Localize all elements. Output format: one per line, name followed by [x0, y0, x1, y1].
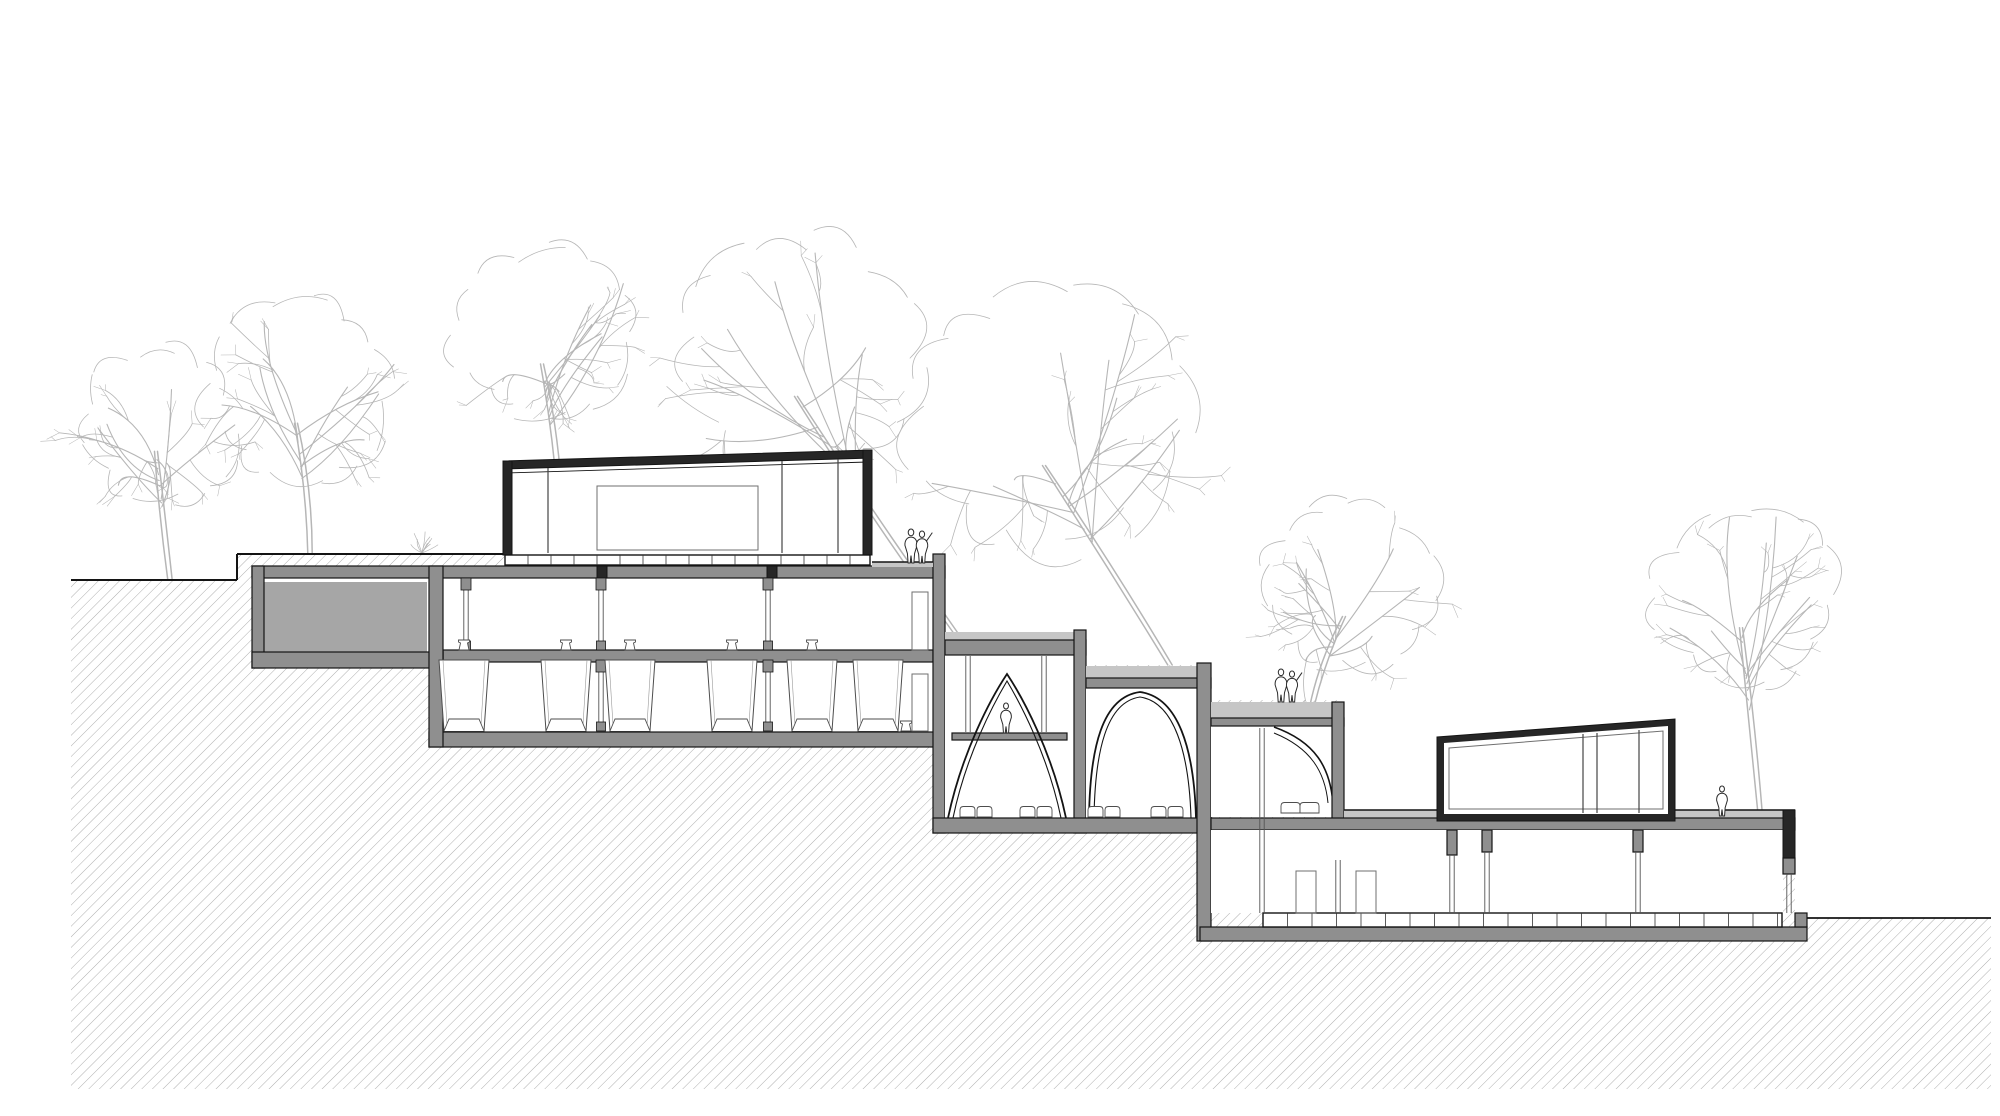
canopy-lobe — [342, 320, 368, 342]
cushion — [1105, 807, 1120, 818]
twig — [1052, 376, 1064, 380]
sunken-pool — [264, 582, 427, 652]
canopy-lobe — [1694, 655, 1717, 672]
canopy-lobe — [241, 446, 259, 472]
figure-body — [916, 539, 927, 563]
canopy-lobe — [1290, 512, 1323, 530]
canopy-lobe — [141, 350, 175, 357]
terrace-pier — [1447, 830, 1457, 855]
canopy-lobe — [1827, 546, 1841, 595]
twig — [255, 442, 259, 450]
canopy-lobe — [225, 431, 246, 450]
partition-cap — [461, 578, 471, 590]
canopy-lobe — [322, 466, 357, 484]
twig — [606, 323, 618, 327]
twig — [227, 398, 238, 399]
canopy-lobe — [675, 337, 694, 381]
trunk-line — [1740, 628, 1758, 812]
twig — [1134, 339, 1147, 342]
roof-pavilion-interior — [512, 455, 863, 555]
twig — [873, 380, 883, 386]
trunk-line — [298, 423, 313, 554]
twig — [592, 366, 602, 372]
twig — [807, 314, 814, 327]
branch-secondary — [571, 377, 609, 388]
twig — [1033, 549, 1034, 554]
figure-head — [908, 529, 914, 536]
branch-secondary — [190, 460, 220, 486]
stool — [561, 640, 572, 650]
canopy-lobe — [519, 247, 566, 262]
twig — [1661, 639, 1668, 644]
branch-secondary — [345, 442, 370, 478]
canopy-lobe — [1662, 639, 1694, 653]
deck-band — [505, 555, 870, 565]
canopy-lobe — [230, 302, 275, 323]
canopy-lobe — [1261, 565, 1269, 606]
roof-pavilion-left-wall — [503, 461, 512, 555]
branch — [1727, 518, 1746, 674]
twig — [69, 438, 80, 444]
canopy-lobe — [667, 387, 719, 423]
twig — [1390, 679, 1394, 690]
twig — [659, 399, 666, 405]
branch-secondary — [206, 407, 234, 445]
canopy-lobe — [1180, 366, 1200, 433]
twig — [1221, 476, 1225, 482]
twig — [801, 241, 802, 256]
canopy-lobe — [108, 470, 122, 496]
twig — [398, 384, 403, 390]
twig — [218, 486, 220, 496]
bed-mattress — [858, 719, 898, 731]
end-wall-sill — [1783, 858, 1795, 874]
figure-head — [1720, 786, 1725, 792]
twig — [1814, 601, 1818, 605]
figure-pair — [905, 529, 932, 563]
branch-secondary — [1285, 627, 1313, 645]
canopy-lobe — [593, 374, 627, 409]
canopy-lobe — [1298, 642, 1317, 663]
twig — [225, 450, 226, 462]
twig — [248, 367, 251, 380]
twig — [457, 402, 466, 406]
canopy-lobe — [1006, 530, 1081, 567]
branch-secondary — [1087, 467, 1130, 525]
canopy-lobe — [1309, 495, 1347, 507]
branch-secondary — [1773, 539, 1809, 568]
twig — [1269, 627, 1274, 637]
canopy-lobe — [91, 375, 93, 405]
twig — [1768, 544, 1771, 552]
twig — [889, 427, 896, 438]
canopy-lobe — [1646, 598, 1655, 630]
branch-secondary — [106, 391, 129, 421]
cushion — [1020, 807, 1035, 818]
canopy-lobe — [133, 494, 178, 501]
twig — [393, 372, 407, 374]
canopy-lobe — [1752, 509, 1804, 522]
branch — [260, 368, 300, 461]
branch-secondary — [1772, 550, 1811, 578]
branch-secondary — [1698, 535, 1728, 571]
twig — [609, 387, 619, 388]
branch-secondary — [1382, 616, 1425, 627]
branch-secondary — [466, 376, 506, 405]
twig — [204, 418, 211, 428]
vault-roof-2-slab — [1086, 678, 1211, 688]
twig — [1659, 586, 1666, 595]
twig — [1134, 387, 1141, 398]
figure-pair — [1275, 669, 1302, 702]
canopy-lobe — [993, 281, 1067, 296]
twig — [1452, 604, 1458, 618]
branch — [297, 392, 378, 435]
tree — [195, 294, 409, 554]
twig — [1168, 373, 1182, 376]
vault-mezzanine-slab — [952, 733, 1067, 740]
partition-cap — [597, 722, 606, 731]
twig — [1654, 604, 1667, 606]
twig — [369, 431, 377, 434]
twig — [1021, 541, 1026, 550]
twig — [974, 547, 975, 561]
branch-secondary — [1790, 575, 1814, 578]
twig — [686, 383, 691, 390]
twig — [238, 374, 251, 380]
twig — [607, 363, 610, 369]
twig — [1142, 435, 1144, 443]
canopy-lobe — [1348, 499, 1385, 507]
branch-secondary — [707, 343, 740, 352]
twig — [1221, 467, 1230, 476]
branch-secondary — [115, 477, 132, 496]
lowest-slab-step — [1795, 913, 1807, 927]
vault-party-wall — [1074, 630, 1086, 833]
branch-secondary — [1105, 376, 1168, 390]
stool — [727, 640, 738, 650]
branch-secondary — [857, 397, 898, 400]
cushion — [1300, 803, 1319, 814]
branch — [706, 428, 817, 442]
vault-room-1-interior — [945, 640, 1077, 818]
branch-secondary — [1117, 337, 1176, 382]
twig — [594, 383, 604, 384]
twig — [1199, 479, 1210, 489]
twig — [1761, 547, 1768, 553]
twig — [1795, 571, 1802, 572]
branch-secondary — [804, 327, 814, 371]
pool-right-wall — [429, 566, 443, 747]
twig — [1273, 564, 1283, 566]
partition-cap — [597, 641, 606, 650]
deck — [1263, 913, 1782, 927]
figure-head — [919, 531, 924, 537]
twig — [559, 424, 564, 430]
branch-secondary — [707, 388, 739, 396]
figure-body — [1275, 677, 1287, 702]
branch-secondary — [666, 392, 736, 398]
canopy-lobe — [1135, 471, 1170, 537]
twig — [1787, 669, 1800, 676]
branch — [301, 387, 348, 469]
twig — [107, 496, 115, 506]
twig — [1452, 604, 1461, 609]
branch — [704, 380, 828, 444]
canopy-lobe — [814, 226, 856, 247]
branch — [546, 385, 559, 393]
branch-secondary — [975, 502, 1028, 548]
cushion — [1088, 807, 1103, 818]
twig — [1812, 648, 1820, 652]
deck-pier — [597, 566, 607, 578]
bed-niche — [439, 660, 489, 731]
end-wall-head — [1783, 810, 1795, 858]
branch-secondary — [1261, 619, 1299, 636]
twig — [355, 479, 361, 487]
bed-mattress — [546, 719, 586, 731]
branch-secondary — [1101, 398, 1134, 429]
branch-secondary — [508, 375, 515, 399]
stool-shape — [561, 640, 572, 650]
figure-head — [1004, 703, 1009, 709]
bed-mattress — [610, 719, 650, 731]
twig — [51, 437, 55, 441]
branch-secondary — [170, 473, 172, 499]
figure-arm — [1296, 673, 1302, 681]
stool-shape — [807, 640, 818, 650]
twig — [227, 364, 239, 373]
twig — [814, 314, 815, 327]
branch-secondary — [1304, 657, 1308, 700]
canopy-lobe — [1153, 432, 1174, 490]
cushion — [1037, 807, 1052, 818]
twig — [889, 422, 896, 427]
branch-secondary — [1033, 511, 1047, 550]
branch-secondary — [1113, 389, 1152, 412]
canopy-lobe — [273, 296, 327, 306]
twig — [95, 428, 97, 440]
twig — [1032, 549, 1034, 557]
canopy-lobe — [314, 294, 344, 321]
twig — [1275, 587, 1284, 592]
canopy-lobe — [683, 276, 711, 313]
branch-secondary — [1369, 591, 1408, 592]
canopy-lobe — [457, 289, 468, 320]
branch — [1070, 419, 1178, 506]
canopy-lobe — [94, 357, 128, 372]
canopy-lobe — [696, 243, 744, 286]
canopy-lobe — [1401, 626, 1419, 655]
architectural-section-drawing — [0, 0, 2000, 1116]
partition-cap — [596, 578, 606, 590]
branch-secondary — [914, 486, 949, 494]
cushion — [977, 807, 992, 818]
canopy-lobe — [897, 406, 924, 469]
twig — [898, 391, 904, 399]
partition-cap — [763, 578, 773, 590]
branch-secondary — [167, 415, 171, 453]
twig — [896, 470, 903, 473]
branch — [1748, 605, 1812, 690]
twig — [1285, 597, 1293, 599]
twig — [1663, 597, 1667, 606]
branch-secondary — [1727, 654, 1730, 676]
branch-secondary — [251, 380, 275, 416]
bottom-slab — [429, 732, 945, 747]
branch — [264, 322, 297, 435]
twig — [94, 386, 106, 390]
vault-roof-2-finish — [1086, 666, 1211, 678]
twig — [1698, 521, 1704, 535]
canopy-lobe — [195, 383, 210, 427]
twig — [1814, 570, 1828, 575]
twig — [54, 429, 59, 433]
terrace-pier — [1482, 830, 1492, 852]
twig — [534, 409, 545, 418]
drawing-canvas — [0, 0, 2000, 1116]
branch — [1090, 430, 1179, 539]
twig — [171, 401, 176, 415]
branch-secondary — [590, 293, 610, 330]
twig — [228, 362, 239, 364]
branch-secondary — [1021, 476, 1023, 541]
twig — [649, 358, 660, 366]
canopy-lobe — [214, 337, 219, 371]
twig — [742, 272, 751, 276]
branch — [1318, 550, 1336, 641]
deck — [505, 555, 870, 565]
twig — [1814, 604, 1823, 607]
bush-twig — [414, 534, 422, 554]
branch-secondary — [1667, 606, 1709, 616]
twig — [805, 257, 816, 263]
branch — [1296, 562, 1334, 643]
pool-bottom-slab — [252, 652, 443, 668]
figure-arm — [926, 533, 932, 542]
branch-secondary — [1404, 600, 1452, 605]
twig — [1661, 594, 1666, 596]
branch-secondary — [1094, 443, 1142, 456]
canopy-lobe — [591, 261, 620, 290]
branch-secondary — [1366, 643, 1376, 674]
twig — [1199, 489, 1205, 495]
terrace-pier — [1633, 830, 1643, 852]
twig — [570, 419, 576, 421]
twig — [1795, 562, 1806, 571]
bed-niche — [853, 660, 903, 731]
branch-secondary — [691, 387, 744, 390]
branch-secondary — [1769, 654, 1787, 669]
partition-cap — [764, 722, 773, 731]
lowest-bottom-slab — [1200, 927, 1807, 941]
twig — [191, 411, 192, 424]
branch-secondary — [1360, 647, 1394, 679]
branch-secondary — [600, 346, 635, 348]
twig — [1130, 333, 1135, 342]
twig — [942, 545, 950, 554]
canopy-lobe — [444, 335, 454, 367]
branch-secondary — [568, 359, 607, 363]
twig — [171, 500, 172, 511]
twig — [698, 343, 707, 348]
canopy-lobe — [912, 338, 948, 378]
terrace-room-roof-slab — [1211, 718, 1344, 726]
partition-cap — [763, 660, 773, 672]
canopy-lobe — [226, 434, 239, 477]
twig — [217, 450, 225, 453]
twig — [816, 256, 823, 263]
canopy-lobe — [910, 304, 927, 359]
branch-secondary — [951, 491, 971, 545]
canopy-lobe — [868, 272, 907, 298]
twig — [1425, 627, 1436, 635]
branch-secondary — [582, 323, 606, 345]
twig — [568, 419, 570, 427]
twig — [1372, 674, 1377, 681]
canopy-lobe — [966, 505, 994, 545]
twig — [100, 497, 105, 503]
cushion — [1151, 807, 1166, 818]
twig — [880, 404, 887, 411]
branch — [932, 483, 1073, 512]
stool — [807, 640, 818, 650]
twig — [360, 453, 370, 458]
cushion — [1168, 807, 1183, 818]
twig — [701, 336, 707, 343]
twig — [1034, 516, 1045, 523]
stool-shape — [459, 640, 470, 650]
canopy-lobe — [166, 341, 198, 368]
deck-pier — [767, 566, 777, 578]
branch-secondary — [587, 304, 625, 330]
canopy-lobe — [210, 461, 237, 486]
branch-secondary — [167, 424, 192, 453]
stool — [459, 640, 470, 650]
terrace-room-roof-finish — [1211, 702, 1344, 718]
canopy-lobe — [1123, 304, 1173, 360]
branch-secondary — [1023, 476, 1034, 516]
branch-secondary — [363, 417, 379, 433]
canopy-lobe — [176, 494, 205, 507]
branch-secondary — [660, 358, 720, 367]
bed-mattress — [792, 719, 832, 731]
twig — [377, 372, 381, 375]
twig — [1176, 336, 1189, 337]
stair-shaft-wall — [1197, 663, 1211, 941]
canopy-lobe — [1781, 642, 1813, 669]
canopy-lobe — [1709, 515, 1751, 528]
twig — [202, 493, 203, 505]
twig — [594, 382, 599, 383]
twig — [503, 399, 508, 413]
canopy-lobe — [270, 473, 322, 487]
stool-shape — [625, 640, 636, 650]
tree — [897, 281, 1231, 665]
canopy-lobe — [1400, 528, 1430, 553]
twig — [255, 442, 263, 449]
figure-head — [1278, 669, 1283, 676]
canopy-lobe — [478, 256, 514, 273]
canopy-lobe — [549, 240, 587, 259]
stool — [901, 721, 912, 731]
vault-floor-slab — [933, 818, 1212, 833]
twig — [235, 390, 237, 399]
bed-niche — [605, 660, 655, 731]
branch-secondary — [856, 413, 890, 427]
canopy-lobe — [377, 401, 383, 450]
branch-secondary — [107, 396, 125, 417]
